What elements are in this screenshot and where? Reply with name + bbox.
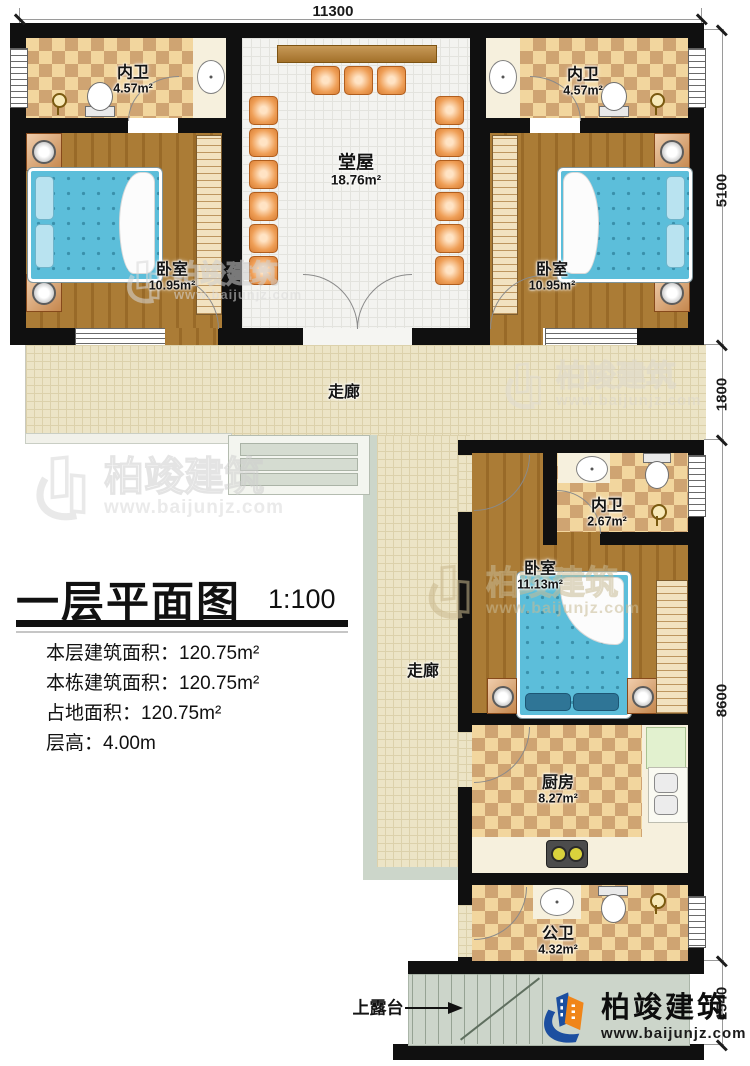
door-threshold — [458, 905, 472, 957]
wall-bath-public-bottom — [408, 961, 704, 974]
entry-step — [240, 458, 358, 471]
sink-icon — [489, 60, 517, 94]
bed-bedroom-mid — [517, 572, 631, 718]
lamp-icon — [32, 140, 56, 164]
window-bath-public — [688, 896, 706, 948]
door-opening-hall — [303, 328, 412, 345]
info-label: 本层建筑面积： — [46, 643, 179, 664]
wall-bottom-topblock — [10, 328, 75, 345]
hall-table — [277, 45, 437, 63]
wall-hall-left — [226, 23, 242, 133]
bed-bedroom-right — [558, 168, 692, 282]
wall-lower-right — [688, 440, 704, 973]
shower-stem — [57, 106, 59, 115]
window-bath-mid — [688, 455, 706, 517]
shower-stem — [655, 106, 657, 115]
nightstand — [26, 133, 62, 171]
room-name: 卧室 — [529, 261, 576, 279]
pillow — [573, 693, 619, 711]
corridor-edge-bottom — [363, 867, 470, 880]
brand-logo-icon — [533, 988, 593, 1050]
toilet-icon — [601, 894, 626, 923]
room-area: 8.27m² — [538, 792, 578, 806]
stair-direction-arrow — [448, 1002, 463, 1014]
room-area: 4.57m² — [563, 84, 603, 98]
chair — [377, 66, 406, 95]
nightstand — [487, 678, 517, 714]
toilet-icon — [645, 461, 669, 489]
toilet-icon — [601, 82, 627, 111]
wall-lower-left — [458, 512, 472, 732]
wall-bath-top-left — [178, 118, 226, 133]
room-label-hall: 堂屋 18.76m² — [331, 154, 381, 189]
toilet-icon — [87, 82, 113, 111]
room-area: 10.95m² — [529, 279, 576, 293]
dimension-right-5100: 5100 — [714, 146, 731, 236]
shower-icon — [650, 893, 666, 909]
bed-sheet — [563, 172, 599, 274]
chair — [311, 66, 340, 95]
floor-corridor-horizontal — [25, 345, 706, 440]
door-threshold — [458, 732, 472, 787]
info-floor-area: 本层建筑面积：120.75m² — [46, 638, 259, 665]
room-label-bath-top-right: 内卫 4.57m² — [563, 66, 603, 97]
label-terrace-stairs: 上露台 — [353, 1000, 404, 1019]
room-name: 内卫 — [113, 64, 153, 82]
window-bath-top-left — [10, 48, 28, 108]
wall-bath-top-right — [580, 118, 704, 133]
watermark-url: www.baijunjz.com — [104, 497, 284, 520]
room-label-bedroom-mid: 卧室 11.13m² — [517, 560, 563, 591]
chair — [249, 192, 278, 221]
info-value: 120.75m² — [179, 673, 259, 694]
room-area: 2.67m² — [587, 515, 627, 529]
chair — [249, 224, 278, 253]
shower-icon — [651, 504, 667, 520]
door-threshold — [458, 455, 472, 512]
room-label-bath-public: 公卫 4.32m² — [538, 925, 578, 956]
nightstand — [654, 133, 690, 171]
room-label-bedroom-right: 卧室 10.95m² — [529, 261, 576, 292]
room-name: 走廊 — [328, 384, 360, 402]
pillow — [35, 176, 54, 220]
lamp-icon — [492, 686, 514, 708]
room-label-bath-mid: 内卫 2.67m² — [587, 497, 627, 528]
brand-name: 柏竣建筑 — [601, 994, 746, 1023]
title-underline — [16, 620, 348, 627]
info-label: 本栋建筑面积： — [46, 673, 179, 694]
lamp-icon — [660, 140, 684, 164]
entry-step — [240, 443, 358, 456]
terrace-label: 上露台 — [353, 1000, 404, 1019]
wall-lower-left — [458, 440, 472, 455]
wall-hall-right — [470, 133, 490, 345]
shower-icon — [52, 93, 67, 108]
room-name: 走廊 — [407, 663, 439, 681]
scale-label: 1:100 — [268, 584, 336, 615]
wall-kitchen-bath — [458, 873, 704, 885]
corridor-edge-left — [363, 435, 377, 880]
kitchen-sink-icon — [654, 773, 678, 793]
room-label-corridor-v: 走廊 — [407, 663, 439, 681]
room-name: 卧室 — [149, 261, 196, 279]
info-footprint-area: 占地面积：120.75m² — [46, 698, 221, 725]
dimension-top-width: 11300 — [283, 3, 383, 20]
info-building-area: 本栋建筑面积：120.75m² — [46, 668, 259, 695]
sink-icon — [576, 456, 608, 482]
wall-bath-top-left — [26, 118, 128, 133]
lamp-icon — [32, 281, 56, 305]
pillow — [666, 224, 685, 268]
closet-bedroom-mid — [656, 580, 688, 714]
room-name: 公卫 — [538, 925, 578, 943]
kitchen-sink-icon — [654, 795, 678, 815]
wall-top — [10, 23, 704, 38]
chair — [435, 128, 464, 157]
dimension-right-8600: 8600 — [714, 656, 731, 746]
room-area: 10.95m² — [149, 279, 196, 293]
lamp-icon — [632, 686, 654, 708]
chair — [435, 256, 464, 285]
wall-hall-left — [222, 133, 242, 345]
wall-bottom-topblock — [637, 328, 704, 345]
info-value: 120.75m² — [179, 643, 259, 664]
room-label-corridor-h: 走廊 — [328, 384, 360, 402]
room-name: 内卫 — [587, 497, 627, 515]
lamp-icon — [660, 281, 684, 305]
room-name: 厨房 — [538, 774, 578, 792]
chair — [435, 160, 464, 189]
chair — [344, 66, 373, 95]
sink-icon — [197, 60, 225, 94]
room-area: 4.32m² — [538, 943, 578, 957]
window-bath-top-right — [688, 48, 706, 108]
wall-lower-left — [458, 787, 472, 905]
bed-sheet — [119, 172, 155, 274]
floor-corridor-vertical — [377, 435, 470, 867]
sink-icon — [540, 888, 574, 916]
nightstand — [627, 678, 657, 714]
wall-bath-mid-bottom — [543, 532, 557, 545]
room-name: 卧室 — [517, 560, 563, 578]
entry-step — [240, 473, 358, 486]
chair — [249, 128, 278, 157]
wall-bath-mid-left — [543, 452, 557, 532]
door-opening-bedroom-left — [165, 328, 218, 345]
info-label: 层高： — [46, 733, 103, 754]
bed-bedroom-left — [28, 168, 162, 282]
chair — [249, 160, 278, 189]
title-underline-thin — [16, 631, 348, 633]
wall-bath-mid-bottom — [600, 532, 688, 545]
room-name: 堂屋 — [331, 154, 381, 174]
room-label-bedroom-left: 卧室 10.95m² — [149, 261, 196, 292]
stove-icon — [546, 840, 588, 868]
burner-icon — [551, 846, 567, 862]
pillow — [525, 693, 571, 711]
brand-logo: 柏竣建筑 www.baijunjz.com — [533, 988, 746, 1050]
terrace-edge-strip — [25, 433, 232, 444]
burner-icon — [568, 846, 584, 862]
chair — [249, 256, 278, 285]
room-label-kitchen: 厨房 8.27m² — [538, 774, 578, 805]
shower-stem — [655, 905, 657, 914]
wall-bath-top-right — [486, 118, 530, 133]
dimension-right-1800: 1800 — [714, 350, 731, 440]
stair-leader-line — [405, 1007, 450, 1009]
window-bedroom-right — [545, 328, 639, 345]
info-value: 4.00m — [103, 733, 156, 754]
window-bedroom-left — [75, 328, 167, 345]
wall-lower-top — [458, 440, 704, 453]
pillow — [666, 176, 685, 220]
chair — [435, 192, 464, 221]
shower-icon — [650, 93, 665, 108]
wall-hall-right — [470, 23, 486, 133]
chair — [435, 224, 464, 253]
shower-stem — [656, 516, 658, 526]
chair — [249, 96, 278, 125]
fridge-icon — [646, 727, 686, 769]
brand-url: www.baijunjz.com — [601, 1023, 746, 1044]
info-floor-height: 层高：4.00m — [46, 728, 156, 755]
bed-sheet — [560, 577, 624, 645]
room-area: 11.13m² — [517, 578, 563, 592]
room-name: 内卫 — [563, 66, 603, 84]
room-label-bath-top-left: 内卫 4.57m² — [113, 64, 153, 95]
watermark-logo-icon — [26, 452, 98, 524]
info-label: 占地面积： — [46, 703, 141, 724]
pillow — [35, 224, 54, 268]
room-area: 4.57m² — [113, 82, 153, 96]
chair — [435, 96, 464, 125]
info-value: 120.75m² — [141, 703, 221, 724]
room-area: 18.76m² — [331, 173, 381, 188]
door-opening-bedroom-right — [490, 328, 543, 345]
floor-plan: 11300 5100 1800 8600 1540 柏竣建筑 www.baiju… — [0, 0, 750, 1066]
